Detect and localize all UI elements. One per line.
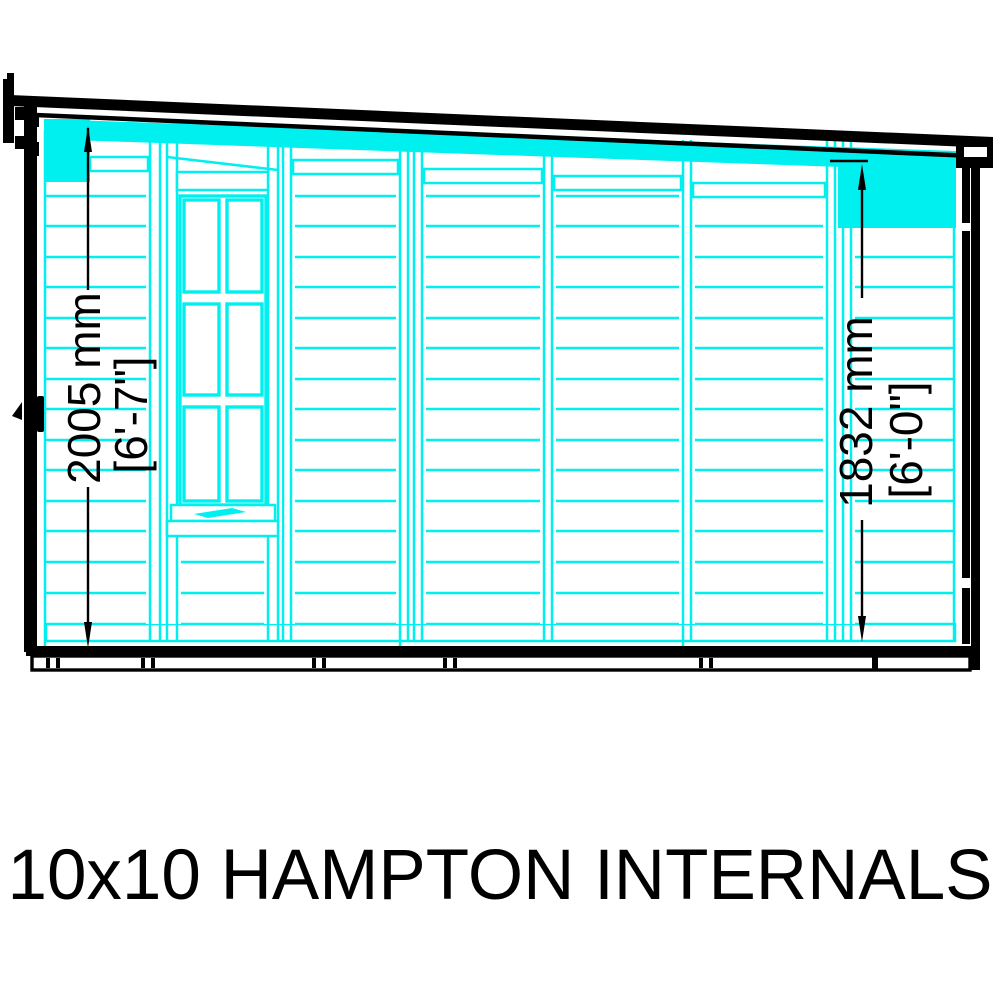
dimension-left: 2005 mm [6'-7"] [58, 126, 157, 648]
door-latch [12, 402, 22, 420]
dimension-left-imperial: [6'-7"] [105, 356, 157, 473]
top-plate-left-block [44, 119, 90, 182]
head-rail [424, 169, 542, 183]
window-pane [184, 200, 219, 292]
window-pane [184, 304, 219, 395]
head-rail [90, 157, 148, 171]
window-head-bar [177, 172, 268, 190]
drawing-title: 10x10 HAMPTON INTERNALS [0, 830, 1000, 920]
window-subrail [167, 521, 278, 536]
barge-board [3, 79, 14, 143]
window-pane [227, 304, 262, 395]
right-wall [962, 163, 980, 670]
window-pane [227, 407, 262, 501]
floor-bearer [32, 656, 970, 670]
dimension-left-metric: 2005 mm [58, 292, 110, 484]
top-plate-right-block [838, 155, 956, 228]
head-rail [693, 183, 825, 197]
head-rail [293, 160, 398, 174]
dimension-right-metric: 1832 mm [830, 316, 882, 508]
door-hinge [37, 396, 44, 432]
left-wall [12, 106, 44, 652]
bottom-rail [46, 624, 955, 641]
floor-base [26, 646, 978, 670]
dimension-right-imperial: [6'-0"] [880, 381, 932, 498]
window-pane [184, 407, 219, 501]
head-rail [554, 176, 681, 190]
window-pane [227, 200, 262, 292]
page: 2005 mm [6'-7"] 1832 mm [6'-0"] 10x10 HA… [0, 0, 1000, 1000]
